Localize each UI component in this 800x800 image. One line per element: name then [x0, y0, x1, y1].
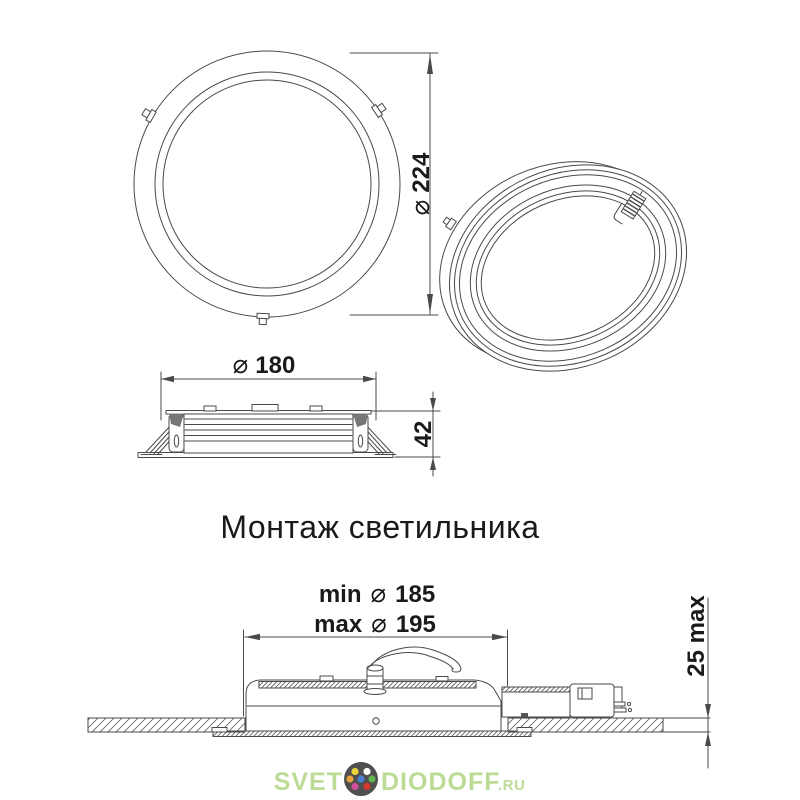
- perspective-view: [407, 122, 720, 411]
- cable-gland: [364, 665, 386, 695]
- side-view: [138, 372, 440, 476]
- cutout-max-label: max⌀195: [314, 608, 436, 638]
- front-diameter-label: ⌀224: [405, 152, 435, 215]
- logo-dot-orange: [346, 775, 353, 782]
- ceiling-right: [508, 718, 710, 732]
- side-body: [184, 414, 353, 453]
- technical-drawing-canvas: ⌀224 ⌀180 42 Монтаж светильника min⌀185 …: [0, 0, 800, 800]
- side-top-boss-left: [204, 406, 216, 411]
- watermark: SVET DIODOFF .RU: [274, 762, 526, 796]
- mounting-screw: [521, 713, 528, 717]
- logo-dot-magenta: [351, 783, 358, 790]
- front-clip-tab-bottom: [257, 313, 269, 324]
- perspective-clip-nub: [442, 216, 456, 230]
- logo-dot-yellow: [351, 768, 358, 775]
- cutout-min-label: min⌀185: [319, 578, 435, 608]
- side-diameter-label: ⌀180: [233, 349, 296, 379]
- watermark-text-diodoff: DIODOFF: [381, 768, 501, 796]
- depth-label: 25 max: [683, 595, 710, 677]
- side-height-label: 42: [410, 421, 437, 448]
- side-top-boss-right: [310, 406, 322, 411]
- driver-box: [570, 684, 632, 717]
- logo-dot-red: [363, 783, 370, 790]
- watermark-text-svet: SVET: [274, 768, 343, 796]
- drawing-page: ⌀224 ⌀180 42 Монтаж светильника min⌀185 …: [0, 0, 800, 800]
- connector-pin-bottom: [614, 708, 626, 712]
- side-spring-clip-right: [353, 414, 396, 455]
- side-spring-clip-left: [141, 414, 184, 455]
- section-title: Монтаж светильника: [220, 509, 539, 545]
- connector-pin-top: [614, 702, 625, 706]
- watermark-logo: [344, 762, 378, 796]
- terminal-box: [502, 687, 570, 717]
- front-view: [134, 51, 438, 325]
- side-top-boss-center: [252, 405, 278, 412]
- logo-dot-green: [368, 775, 375, 782]
- logo-dot-blue: [357, 775, 364, 782]
- logo-dot-white: [363, 768, 370, 775]
- line-art: [88, 51, 720, 768]
- front-outer-ring: [134, 51, 400, 317]
- test-hole: [373, 718, 379, 724]
- watermark-text-tld: .RU: [498, 777, 525, 794]
